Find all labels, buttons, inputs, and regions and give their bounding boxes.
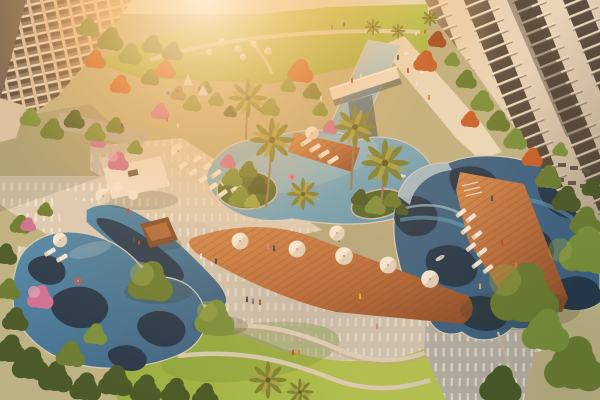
aerial-render-image [0,0,600,400]
pool-courtyard-render [0,0,600,400]
screenshot-canvas [0,0,600,400]
light-overlays [0,0,600,400]
color-grade [0,0,600,400]
